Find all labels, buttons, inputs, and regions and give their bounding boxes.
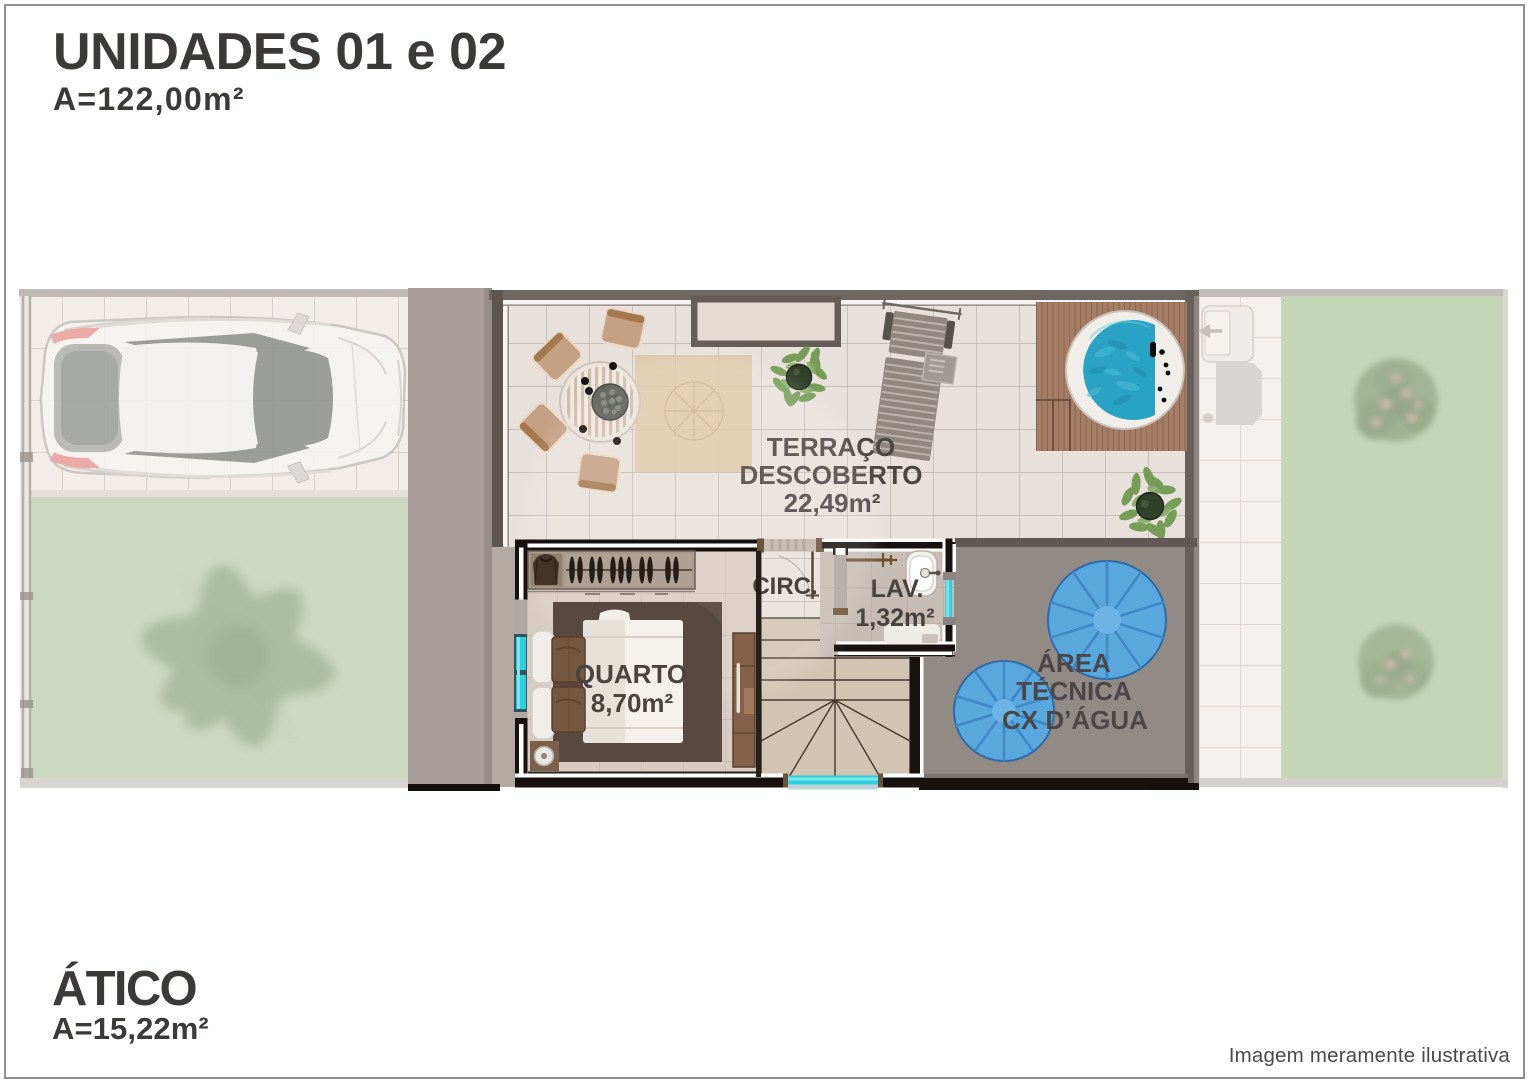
svg-text:ÁREA: ÁREA (1037, 648, 1111, 678)
svg-text:LAV.: LAV. (871, 575, 924, 603)
svg-text:TÉCNICA: TÉCNICA (1016, 676, 1132, 706)
svg-text:QUARTO: QUARTO (575, 659, 687, 689)
svg-text:CX D’ÁGUA: CX D’ÁGUA (1002, 705, 1148, 735)
svg-text:CIRC.: CIRC. (752, 573, 817, 600)
svg-text:8,70m²: 8,70m² (591, 688, 674, 718)
svg-text:1,32m²: 1,32m² (855, 604, 934, 632)
